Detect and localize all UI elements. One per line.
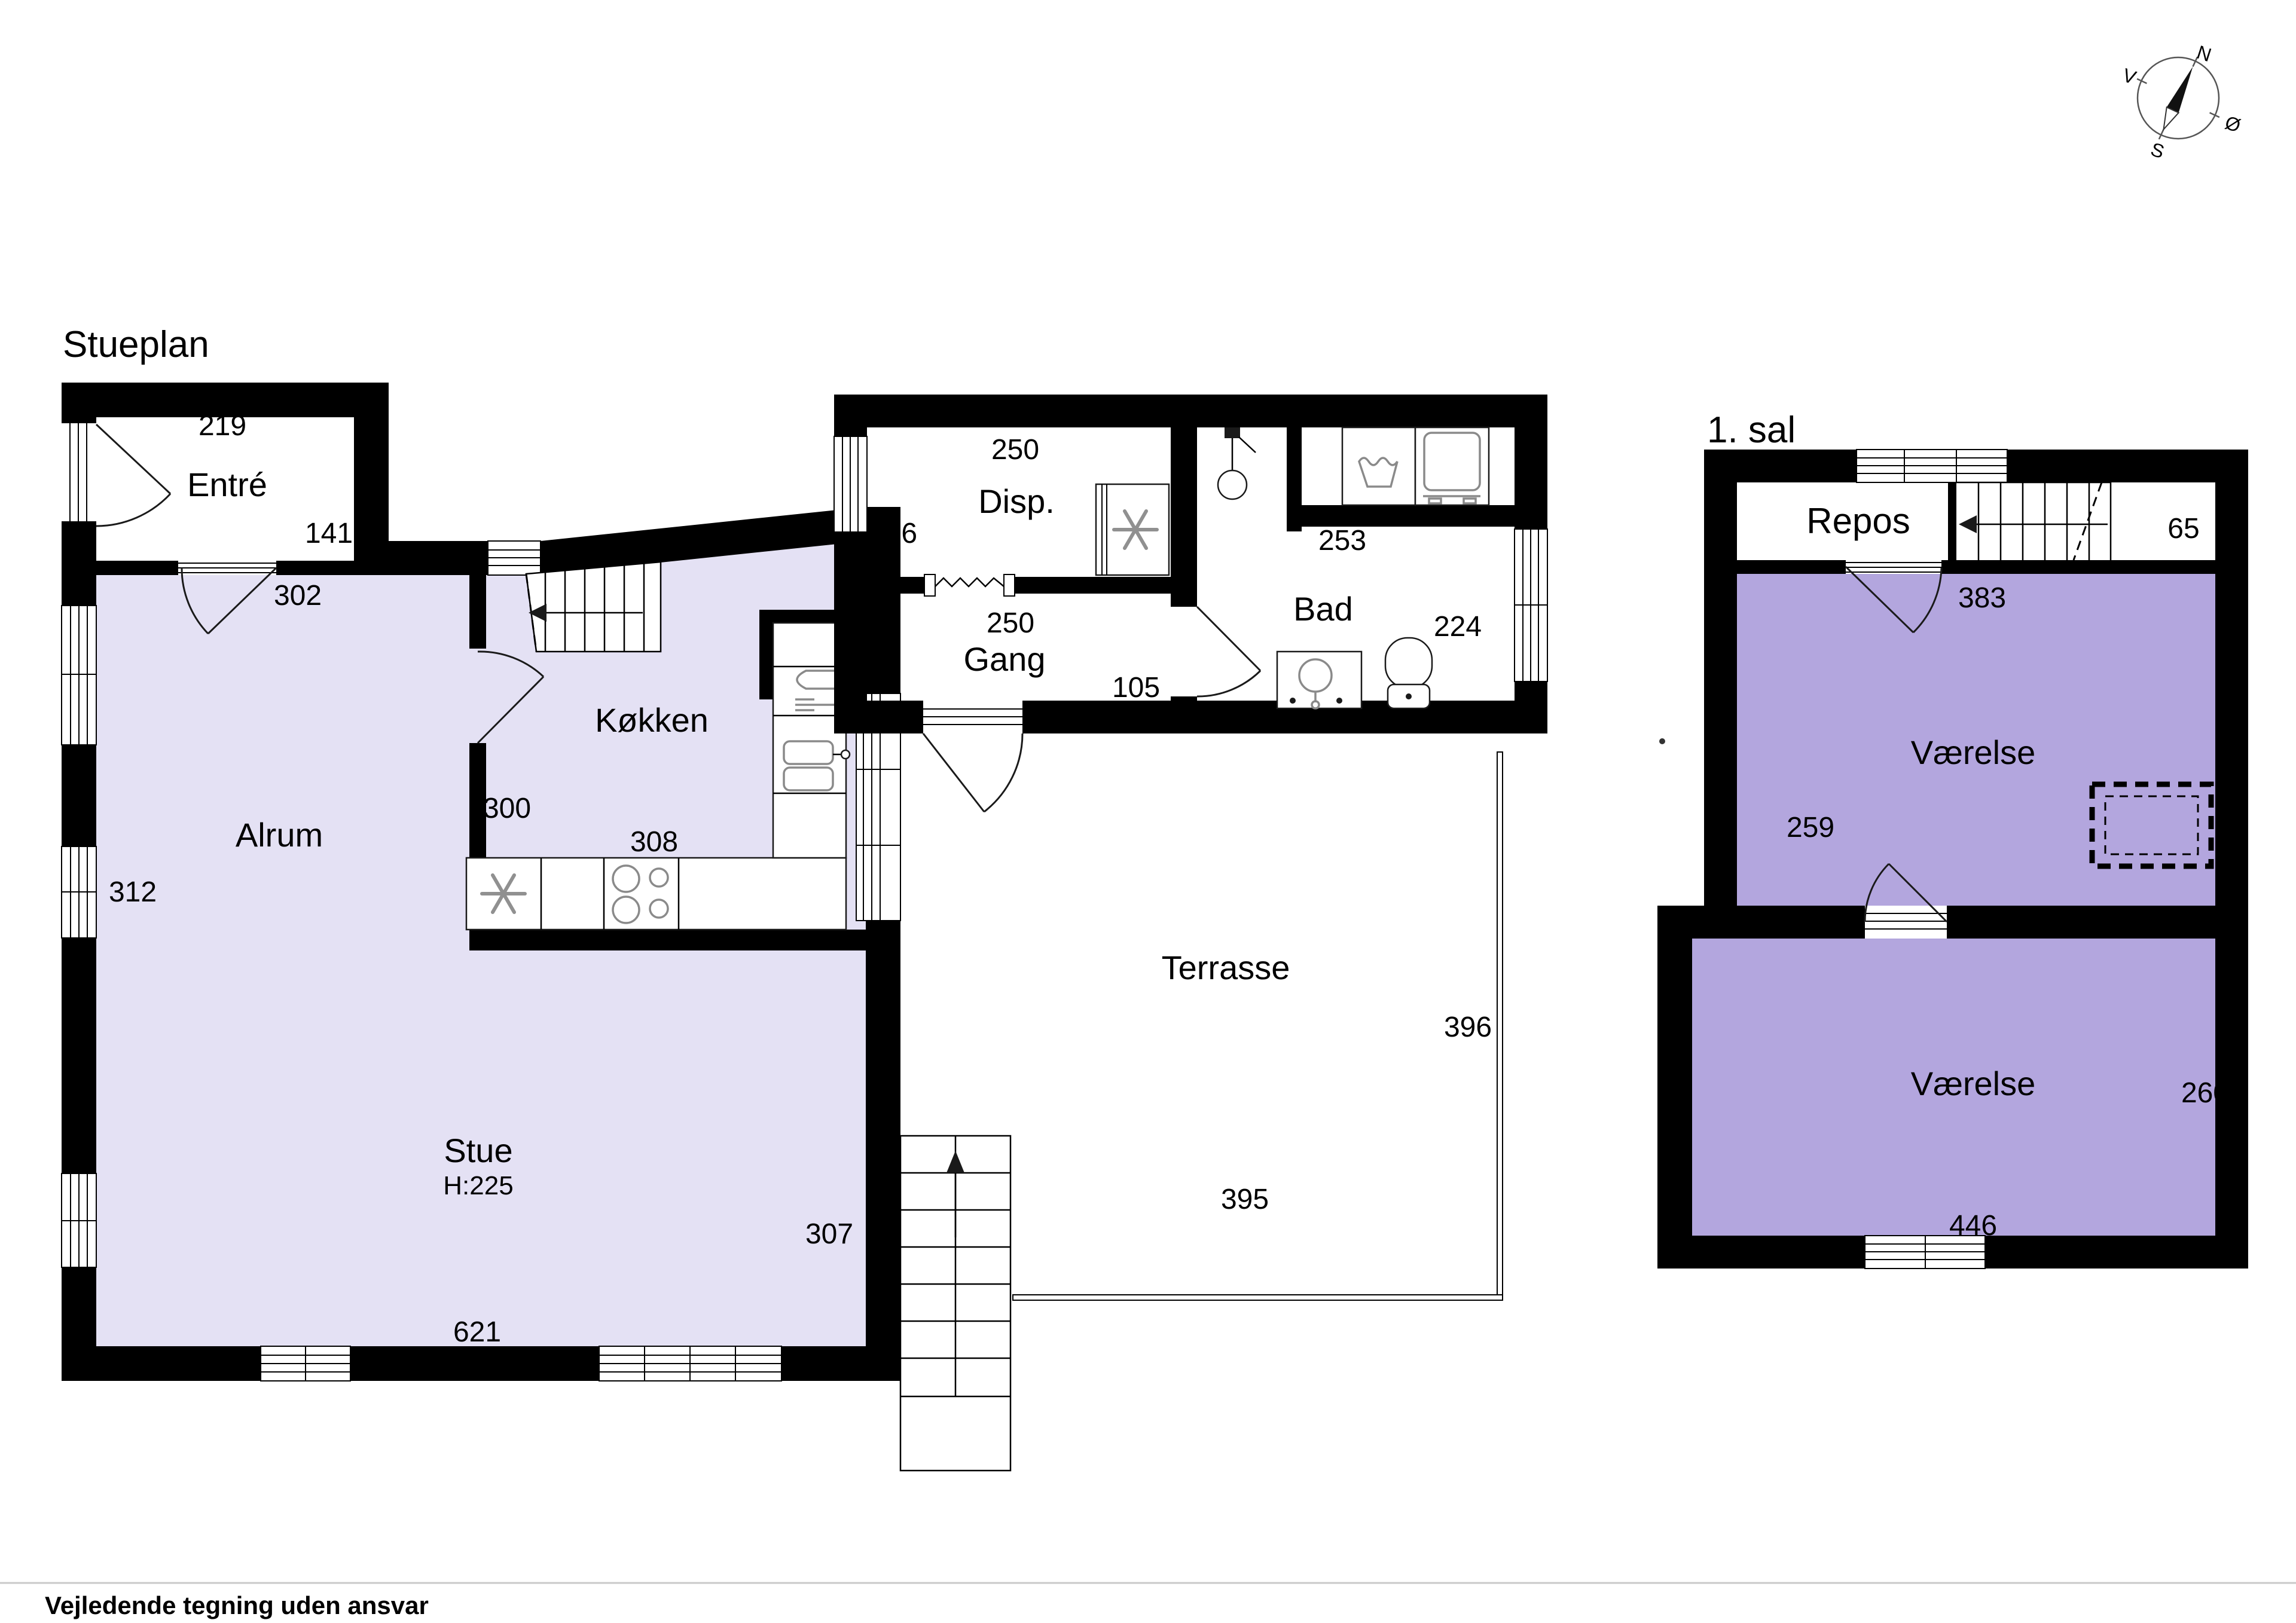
- vaerelse-upper-label: Værelse: [1911, 733, 2036, 771]
- disp-gang-opening: [924, 574, 1015, 596]
- gang-exterior-door: [923, 709, 1022, 812]
- compass-needle: [2158, 64, 2199, 132]
- vaerelse-lower-dim-height: 260: [2181, 1077, 2229, 1109]
- terrasse-stairs: [900, 1136, 1010, 1471]
- entre-label: Entré: [187, 466, 267, 503]
- first-floor: 1. sal Repos 65 383 Værelse 259 Værelse …: [1657, 409, 2248, 1269]
- window-left-1: [62, 606, 96, 745]
- vaerelse-upper-dim: 259: [1787, 812, 1834, 843]
- kokken-label: Køkken: [595, 701, 709, 739]
- alrum-dim-height: 312: [109, 876, 157, 908]
- kokken-dim-height: 300: [483, 793, 531, 824]
- terrasse-boundary: [1013, 752, 1503, 1300]
- laundry-sink-icon: [1342, 427, 1415, 505]
- kitchen-stairs: [526, 562, 661, 652]
- terrasse-dim-height: 396: [1444, 1011, 1492, 1043]
- bad-label: Bad: [1293, 590, 1353, 628]
- vaerelse-lower-dim-width: 446: [1949, 1210, 1997, 1242]
- gang-label: Gang: [964, 640, 1046, 678]
- stue-dim-height: 307: [805, 1218, 853, 1250]
- window-kitchen-top: [488, 541, 541, 575]
- disp-dim-height: 106: [869, 518, 917, 549]
- bad-dim-height: 224: [1434, 611, 1482, 643]
- vaerelse-lower-label: Værelse: [1911, 1065, 2036, 1102]
- bathroom-sink-icon: [1277, 652, 1361, 708]
- compass-north-label: N: [2194, 41, 2214, 66]
- window-bottom-1: [261, 1346, 350, 1381]
- stue-label: Stue: [444, 1132, 512, 1169]
- compass-south-label: S: [2148, 138, 2167, 163]
- repos-label: Repos: [1806, 501, 1910, 541]
- window-disp-left: [834, 436, 867, 532]
- alrum-entry-dim: 302: [274, 580, 322, 612]
- disp-label: Disp.: [978, 482, 1055, 520]
- alrum-label: Alrum: [236, 816, 323, 854]
- stue-dim-width: 621: [453, 1316, 501, 1348]
- entre-dim-width: 219: [199, 410, 246, 442]
- first-floor-stairs: [1956, 482, 2111, 560]
- window-bottom-2: [599, 1346, 781, 1381]
- stueplan-title: Stueplan: [63, 324, 209, 365]
- reference-dot: [1659, 738, 1665, 744]
- kokken-dim-width: 308: [630, 826, 678, 858]
- window-left-2: [62, 846, 96, 938]
- terrasse-label: Terrasse: [1162, 949, 1290, 986]
- entre-dim-height: 141: [305, 518, 353, 549]
- bad-fixtures: [1218, 427, 1489, 708]
- bad-dim-width: 253: [1318, 525, 1366, 557]
- front-door: [70, 423, 170, 526]
- floorplan-page: Stueplan 219 Entré 141 302 Alrum 312 Køk…: [0, 0, 2296, 1623]
- compass-east-label: Ø: [2222, 112, 2243, 137]
- first-floor-title: 1. sal: [1707, 409, 1796, 451]
- window-left-3: [62, 1173, 96, 1267]
- footer: Vejledende tegning uden ansvar: [0, 1583, 2296, 1619]
- toilet-icon: [1385, 638, 1432, 708]
- repos-stair-dim: 65: [2167, 513, 2199, 545]
- floorplan-drawing: Stueplan 219 Entré 141 302 Alrum 312 Køk…: [0, 0, 2296, 1623]
- stueplan: Stueplan 219 Entré 141 302 Alrum 312 Køk…: [62, 324, 1665, 1471]
- compass-west-label: V: [2120, 64, 2139, 88]
- compass: N Ø S V: [2118, 38, 2243, 163]
- window-bad-right: [1515, 529, 1547, 681]
- footer-disclaimer: Vejledende tegning uden ansvar: [45, 1591, 429, 1619]
- washing-machine-icon: [1415, 427, 1489, 505]
- stue-ceiling-height: H:225: [443, 1171, 513, 1200]
- disp-unit: [1096, 484, 1169, 575]
- gang-dim-width: 250: [987, 607, 1034, 639]
- bad-door: [1197, 607, 1260, 696]
- repos-door-dim: 383: [1958, 582, 2006, 614]
- window-first-top: [1857, 450, 2007, 482]
- gang-dim-door: 105: [1112, 672, 1160, 704]
- shower-icon: [1218, 427, 1256, 499]
- terrasse-dim-width: 395: [1221, 1184, 1269, 1215]
- disp-dim-width: 250: [991, 434, 1039, 466]
